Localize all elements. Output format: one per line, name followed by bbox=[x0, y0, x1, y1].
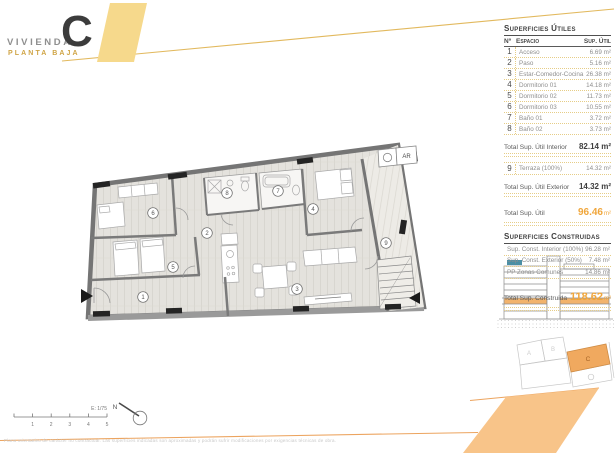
ar-label: AR bbox=[402, 154, 411, 160]
room-marker: 6 bbox=[148, 208, 159, 219]
unit-letter: C bbox=[61, 10, 93, 54]
divider bbox=[504, 223, 611, 226]
total-useful-row: Total Sup. Útil 96.46m² bbox=[504, 199, 611, 223]
unit-b-label: B bbox=[551, 347, 555, 353]
room-marker: 9 bbox=[381, 238, 392, 249]
svg-text:4: 4 bbox=[87, 422, 90, 428]
room-marker: 1 bbox=[138, 292, 149, 303]
unit-a-label: A bbox=[527, 351, 531, 357]
table-row: 1Acceso6.69 m² bbox=[504, 47, 611, 58]
table-row: 5Dormitorio 0211.73 m² bbox=[504, 91, 611, 102]
svg-text:3: 3 bbox=[68, 422, 71, 428]
total-exterior-row: Total Sup. Útil Exterior 14.32 m² bbox=[504, 179, 611, 194]
scale-ratio-label: E: 1/75 bbox=[91, 406, 107, 412]
table-row: 8Baño 023.73 m² bbox=[504, 124, 611, 135]
col-area: Sup. Útil bbox=[584, 38, 611, 45]
built-row: PP Zonas Comunes14.86 m² bbox=[504, 267, 611, 279]
areas-panel: Superficies Útiles Nº Espacio Sup. Útil … bbox=[504, 24, 611, 311]
scale-and-north: 1 2 3 4 5 E: 1/75 N bbox=[8, 400, 178, 432]
table-column-headers: Nº Espacio Sup. Útil bbox=[504, 36, 611, 47]
north-label: N bbox=[113, 404, 118, 411]
table-row: 4Dormitorio 0114.18 m² bbox=[504, 80, 611, 91]
unit-c-label: C bbox=[586, 356, 591, 363]
built-areas-title: Superficies Construidas bbox=[504, 232, 611, 244]
scale-bar bbox=[14, 414, 107, 418]
floor-plan: AR 1 2 3 4 5 6 7 8 9 bbox=[75, 138, 475, 352]
room-marker: 7 bbox=[273, 186, 284, 197]
table-row: 3Estar-Comedor-Cocina26.38 m² bbox=[504, 69, 611, 80]
room-marker: 8 bbox=[222, 188, 233, 199]
north-indicator: N bbox=[113, 403, 147, 425]
floor-name: PLANTA BAJA bbox=[8, 50, 80, 57]
room-marker: 2 bbox=[202, 228, 213, 239]
scale-tick-labels: 1 2 3 4 5 bbox=[31, 422, 108, 428]
footer-disclaimer: Plano orientativo de carácter no contrac… bbox=[4, 438, 349, 443]
divider bbox=[504, 194, 611, 197]
total-interior-row: Total Sup. Útil Interior 82.14 m² bbox=[504, 139, 611, 154]
table-row: 6Dormitorio 0310.55 m² bbox=[504, 102, 611, 113]
useful-areas-title: Superficies Útiles bbox=[504, 24, 611, 36]
col-space: Espacio bbox=[516, 38, 584, 45]
total-built-row: Total Sup. Construida 118.62m² bbox=[504, 284, 611, 308]
room-marker: 3 bbox=[292, 284, 303, 295]
ar-closet: AR bbox=[378, 146, 417, 167]
built-row: Sup. Const. Interior (100%)96.28 m² bbox=[504, 244, 611, 256]
built-row: Sup. Const. Exterior (50%)7.48 m² bbox=[504, 256, 611, 268]
exterior-row: 9 Terraza (100%) 14.32 m² bbox=[504, 162, 611, 175]
table-row: 2Paso5.16 m² bbox=[504, 58, 611, 69]
table-row: 7Baño 013.72 m² bbox=[504, 113, 611, 124]
svg-text:5: 5 bbox=[106, 422, 109, 428]
col-num: Nº bbox=[504, 38, 516, 45]
svg-text:1: 1 bbox=[31, 422, 34, 428]
svg-text:2: 2 bbox=[50, 422, 53, 428]
room-marker: 5 bbox=[168, 262, 179, 273]
ground-hatch bbox=[497, 319, 615, 330]
divider bbox=[504, 308, 611, 311]
room-marker: 4 bbox=[308, 204, 319, 215]
stairs bbox=[377, 256, 416, 309]
key-plan: A B C bbox=[503, 330, 615, 408]
divider bbox=[504, 154, 611, 157]
